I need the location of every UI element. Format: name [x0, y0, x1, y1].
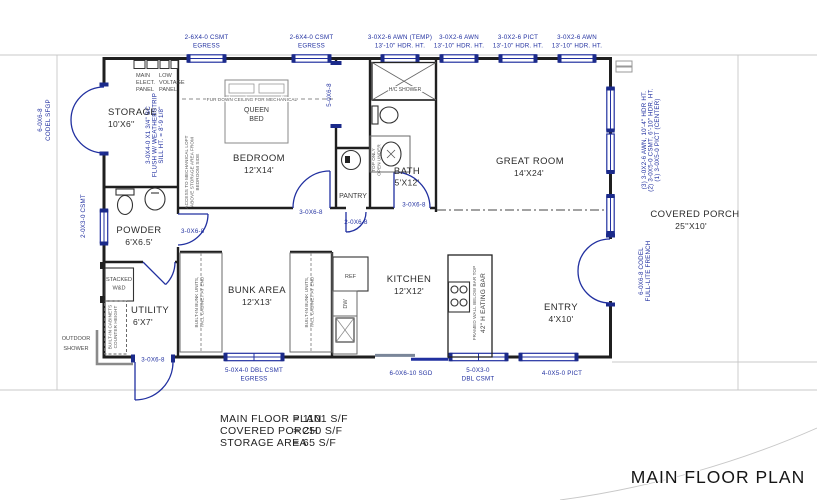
pantry-bath-labels: PANTRY 2-0X6-8 H/C SHOWER TOP ONLY OPEN … [339, 87, 426, 226]
bunk-kitchen-labels: BUNK AREA 12'X13' BUILT-IN BUNK UNITS, T… [194, 266, 487, 340]
label-bunk-units-right-2: TALL CABINET AT END [310, 276, 315, 327]
label-awn-1-line2: 13'-10" HDR. HT. [434, 43, 484, 50]
label-entry-door-1: 6-0X6-8 CODEL [638, 247, 645, 295]
room-label-kitchen: KITCHEN [387, 274, 432, 285]
label-storage-door-line2: CODEL SFGP [45, 99, 52, 141]
label-builtin-cabinets-1: BUILT-IN CABINETS [108, 305, 113, 350]
label-dw: DW [343, 299, 349, 309]
label-awn-temp-line2: 13'-10" HDR. HT. [375, 43, 425, 50]
room-size-bath: 5'X12' [395, 178, 420, 188]
label-vanity-note-1: TOP ONLY [371, 148, 376, 172]
label-kitchen-window-1: 5-0X3-0 [466, 367, 490, 374]
label-outdoor-shower-1: OUTDOOR [62, 336, 91, 342]
label-entry-door-2: FULL-LITE FRENCH [645, 241, 652, 302]
label-outdoor-shower-2: SHOWER [63, 346, 88, 352]
room-size-powder: 6'X6.5' [125, 237, 153, 247]
room-label-powder: POWDER [116, 225, 161, 236]
label-loft-access-1: ACCESS TO MECHANICAL LOFT [184, 135, 189, 208]
bath-toilet [372, 106, 398, 124]
room-label-utility: UTILITY [131, 305, 169, 316]
area-summary: MAIN FLOOR PLAN = 1101 S/F COVERED PORCH… [220, 413, 348, 449]
window-wall-right [606, 87, 614, 236]
sheet-arc [560, 428, 817, 500]
label-pict-top-line1: 3-0X2-6 PICT [498, 34, 538, 41]
window-awn-1 [440, 54, 479, 62]
label-bedroom-door: 3-0X6-8 [299, 209, 323, 216]
label-bunk-window-1: 5-0X4-0 DBL CSMT [225, 367, 283, 374]
sheet-title: MAIN FLOOR PLAN [631, 467, 805, 487]
label-hc-shower: H/C SHOWER [389, 87, 422, 93]
room-size-bedroom: 12'X14' [244, 165, 274, 175]
label-main-panel-2: ELECT. [136, 80, 155, 86]
label-pantry-door: 2-0X6-8 [344, 219, 368, 226]
floor-plan-drawing: 2-6X4-0 CSMT EGRESS 2-6X4-0 CSMT EGRESS … [0, 0, 817, 500]
room-label-bedroom: BEDROOM [233, 153, 285, 164]
label-loft-access-3: BEDROOM SIDE [195, 154, 200, 191]
electrical-panels [134, 61, 178, 69]
room-size-entry: 4'X10' [549, 314, 574, 324]
bottom-window-labels: 5-0X4-0 DBL CSMT EGRESS 6-0X6-10 SGD 5-0… [225, 367, 582, 383]
greatroom-entry-porch-labels: GREAT ROOM 14'X24' ENTRY 4'X10' COVERED … [496, 88, 740, 324]
utility-interior-door [143, 262, 175, 285]
room-label-bath: BATH [394, 166, 420, 177]
label-stacked-wd-1: STACKED [106, 277, 132, 283]
summary-row-2-value: = 250 S/F [293, 425, 342, 437]
label-csmt-egress-2-line1: 2-6X4-0 CSMT [290, 34, 334, 41]
label-low-voltage-2: VOLTAGE [159, 80, 185, 86]
label-awn-2-line2: 13'-10" HDR. HT. [552, 43, 602, 50]
room-size-utility: 6'X7' [133, 317, 153, 327]
window-bunk-egress [224, 353, 285, 361]
label-bunk-units-right-1: BUILT-IN BUNK UNITS, [304, 277, 309, 328]
powder-toilet [116, 189, 134, 215]
label-main-panel-3: PANEL [136, 87, 154, 93]
storage-exterior-door [71, 83, 109, 156]
label-low-voltage-3: PANEL [159, 87, 177, 93]
label-vanity-note-2: OPEN UNDER [377, 144, 382, 176]
room-size-bunk: 12'X13' [242, 297, 272, 307]
summary-row-1-value: = 1101 S/F [293, 413, 348, 425]
powder-sink [145, 188, 165, 210]
top-window-labels: 2-6X4-0 CSMT EGRESS 2-6X4-0 CSMT EGRESS … [185, 34, 603, 50]
label-csmt-egress-1-line2: EGRESS [193, 43, 220, 50]
label-queen-bed-2: BED [249, 116, 263, 123]
label-awn-2-line1: 3-0X2-6 AWN [557, 34, 597, 41]
window-csmt-egress-2 [292, 54, 332, 62]
label-closet-opening: 5-0X6-8 [326, 83, 333, 107]
shower [372, 63, 436, 101]
label-eating-bar: 42" H EATING BAR [480, 273, 487, 333]
label-main-panel-1: MAIN [136, 73, 150, 79]
summary-row-3-value: = 65 S/F [293, 437, 336, 449]
label-window-wall-note-3: (1) 3-0X5-0 PICT (CENTER) [654, 98, 661, 181]
label-powder-window: 2-0X3-0 CSMT [80, 194, 87, 238]
window-powder-csmt [100, 209, 108, 246]
room-label-bunk: BUNK AREA [228, 285, 286, 296]
label-framed-wall: FRAMED WALL BELOW BAR TOP [472, 266, 477, 340]
bedroom-labels: FUR DOWN CEILING FOR MECHANICAL QUEEN BE… [207, 83, 333, 216]
label-awn-temp-line1: 3-0X2-6 AWN (TEMP) [368, 34, 432, 41]
label-bunk-units-left-1: BUILT-IN BUNK UNITS, [194, 277, 199, 328]
window-entry-pict [519, 353, 579, 361]
label-ref: REF [345, 274, 357, 280]
label-low-voltage-1: LOW [159, 73, 172, 79]
sliding-glass-door [375, 353, 448, 360]
label-patio-door: 6-0X6-10 SGD [390, 370, 433, 377]
label-bunk-window-2: EGRESS [241, 376, 268, 383]
label-fur-down: FUR DOWN CEILING FOR MECHANICAL [207, 97, 298, 102]
water-heater [342, 151, 361, 170]
window-awn-2 [558, 54, 597, 62]
bedroom-door [293, 171, 330, 208]
label-storage-door-line1: 6-0X6-8 [37, 108, 44, 132]
left-labels: 6-0X6-8 CODEL SFGP 2-0X3-0 CSMT [37, 99, 87, 238]
label-queen-bed-1: QUEEN [244, 107, 269, 114]
label-awn-1-line1: 3-0X2-6 AWN [439, 34, 479, 41]
label-bath-door: 3-0X6-8 [402, 202, 426, 209]
room-size-porch: 25''X10' [675, 221, 707, 231]
room-label-porch: COVERED PORCH [650, 209, 739, 220]
room-label-great: GREAT ROOM [496, 156, 564, 167]
room-size-great: 14'X24' [514, 168, 544, 178]
label-csmt-egress-1-line1: 2-6X4-0 CSMT [185, 34, 229, 41]
room-label-entry: ENTRY [544, 302, 578, 313]
window-csmt-egress-1 [187, 54, 227, 62]
window-pict-top [499, 54, 538, 62]
label-csmt-egress-2-line2: EGRESS [298, 43, 325, 50]
label-kitchen-window-2: DBL CSMT [462, 376, 495, 383]
label-utility-door: 3-0X6-8 [141, 357, 165, 364]
room-label-pantry: PANTRY [339, 193, 367, 200]
label-entry-window: 4-0X5-0 PICT [542, 370, 582, 377]
label-loft-door-3: SILL HT. = 8'-9 1/8" [158, 106, 165, 163]
window-awn-temp [381, 54, 420, 62]
label-stacked-wd-2: W&D [112, 286, 125, 292]
label-powder-door: 3-0X6-8 [181, 228, 205, 235]
label-pict-top-line2: 13'-10" HDR. HT. [493, 43, 543, 50]
label-builtin-cabinets-2: COUNTER HEIGHT [113, 306, 118, 349]
floor-plan-sheet: 2-6X4-0 CSMT EGRESS 2-6X4-0 CSMT EGRESS … [0, 0, 817, 500]
room-size-kitchen: 12'X12' [394, 286, 424, 296]
room-size-storage: 10'X6'' [108, 119, 135, 129]
label-bunk-units-left-2: TALL CABINET AT END [200, 276, 205, 327]
label-loft-access-2: ABOVE STORAGE AREA FROM [190, 137, 195, 207]
porch-step [616, 61, 632, 72]
entry-french-door [578, 234, 615, 307]
